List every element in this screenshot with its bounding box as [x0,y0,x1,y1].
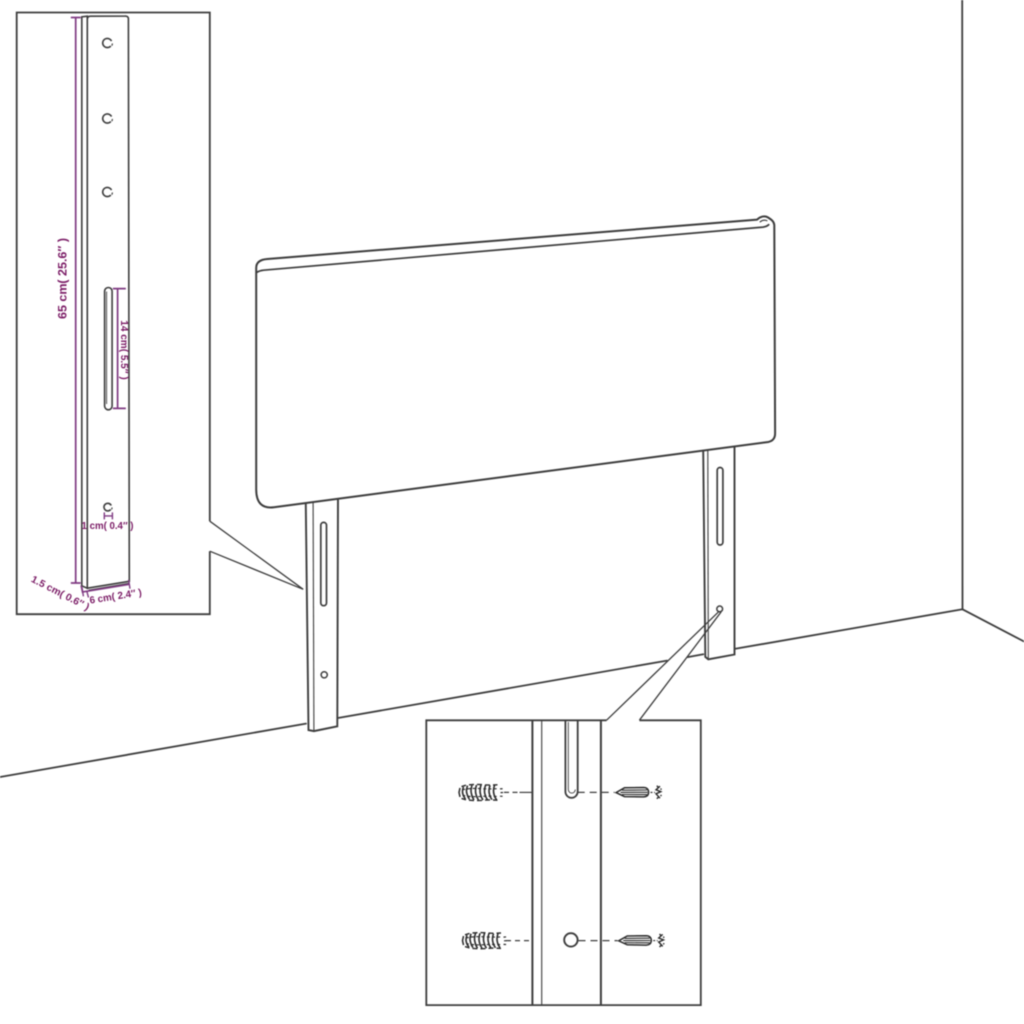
svg-text:65 cm( 25.6″ ): 65 cm( 25.6″ ) [55,238,69,319]
svg-text:14 cm( 5.5″ ): 14 cm( 5.5″ ) [118,320,130,379]
svg-text:1 cm( 0.4″ ): 1 cm( 0.4″ ) [82,521,134,532]
